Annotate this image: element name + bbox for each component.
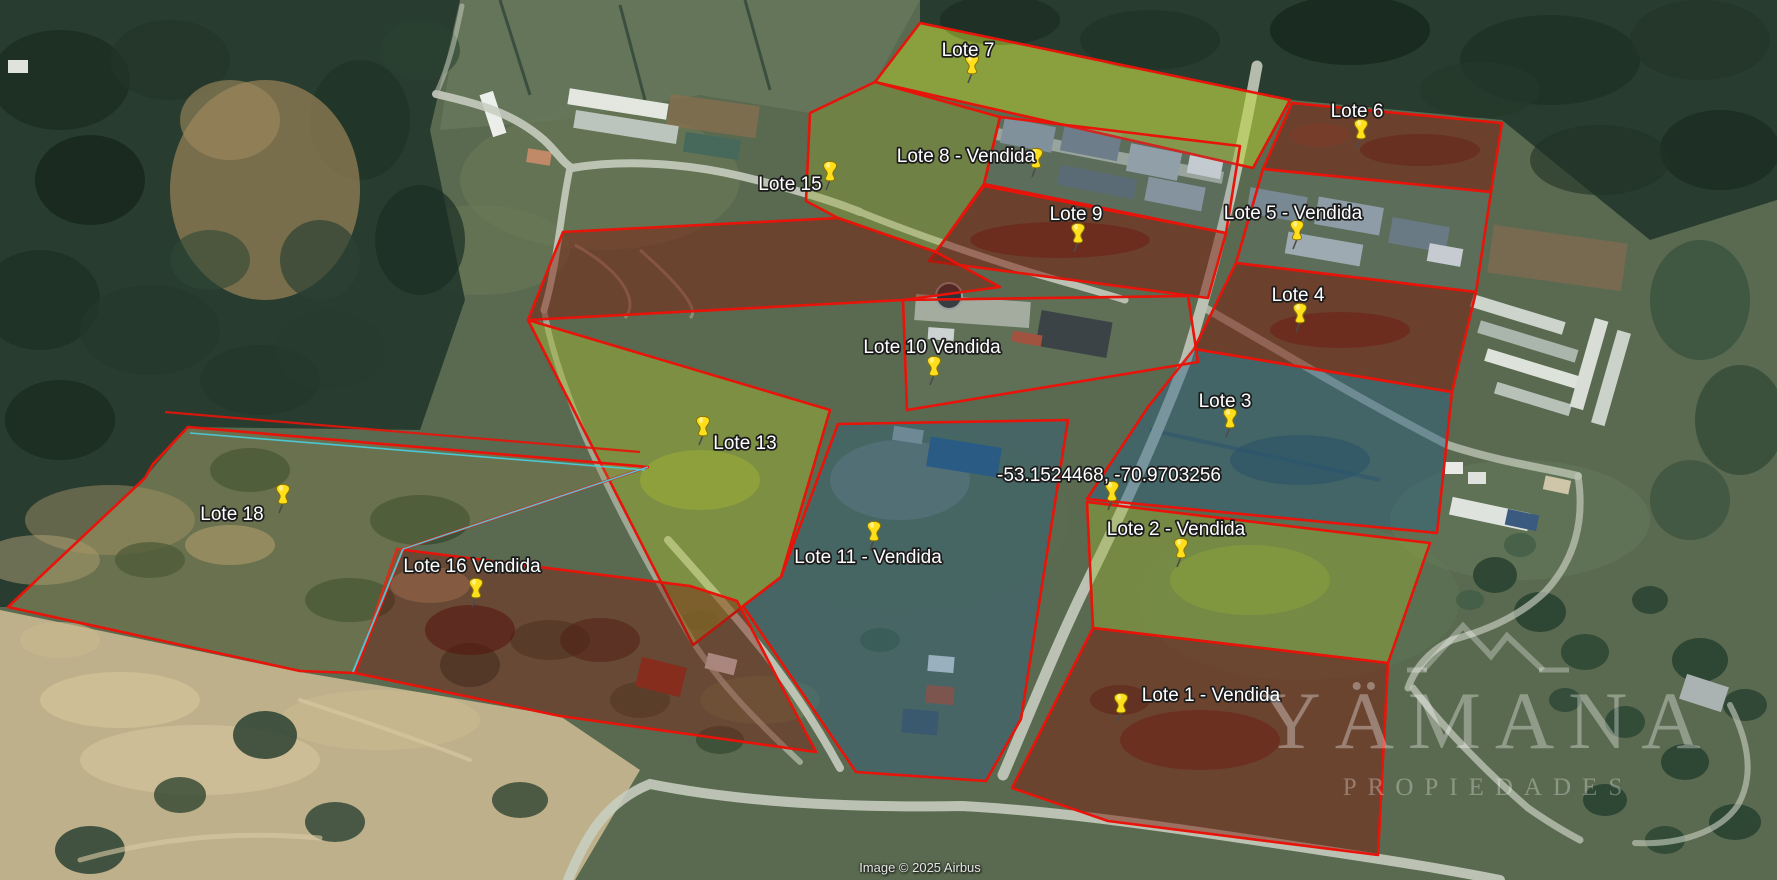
lote9-label: Lote 9 xyxy=(1050,204,1103,225)
lote11-label: Lote 11 - Vendida xyxy=(794,547,942,568)
imagery-attribution: Image © 2025 Airbus xyxy=(790,860,1050,875)
lote2-label: Lote 2 - Vendida xyxy=(1107,519,1246,540)
coordinate-marker-label: -53.1524468, -70.9703256 xyxy=(997,465,1221,486)
lote16-label: Lote 16 Vendida xyxy=(403,556,541,577)
lote13-label: Lote 13 xyxy=(713,433,776,454)
lote6-label: Lote 6 xyxy=(1331,101,1384,122)
lote7-label: Lote 7 xyxy=(942,40,995,61)
lote10-label: Lote 10 Vendida xyxy=(863,337,1001,358)
lote15-label: Lote 15 xyxy=(758,174,821,195)
lote18-label: Lote 18 xyxy=(200,504,263,525)
lote8-label: Lote 8 - Vendida xyxy=(897,146,1036,167)
lote5-label: Lote 5 - Vendida xyxy=(1224,203,1363,224)
lote1-label: Lote 1 - Vendida xyxy=(1142,685,1281,706)
lote3-label: Lote 3 xyxy=(1199,391,1252,412)
satellite-map-view: Lote 7Lote 15Lote 8 - VendidaLote 9Lote … xyxy=(0,0,1777,880)
satellite-map: Lote 7Lote 15Lote 8 - VendidaLote 9Lote … xyxy=(0,0,1777,880)
lote4-label: Lote 4 xyxy=(1272,285,1325,306)
